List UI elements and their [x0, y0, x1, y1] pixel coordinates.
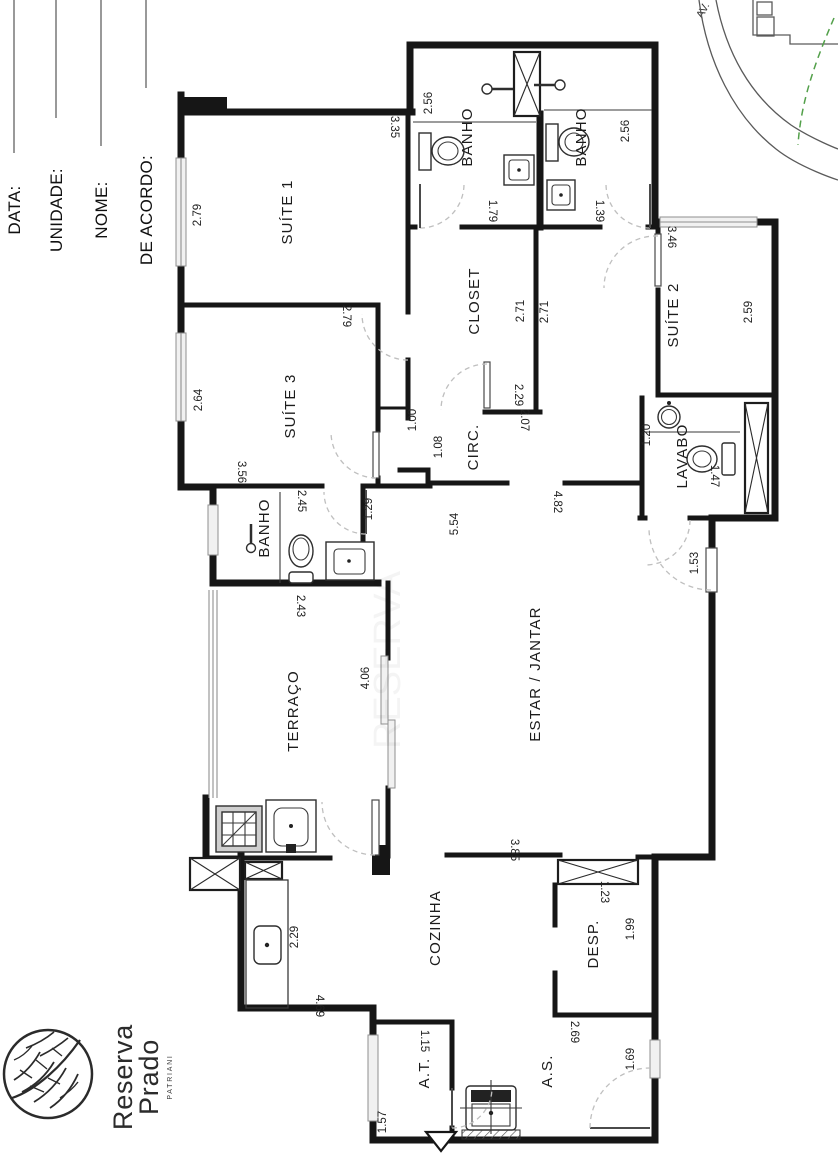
blueprint-svg: DATA: UNIDADE: NOME: DE ACORDO: AV. — [0, 0, 838, 1175]
tank-base-hatch — [462, 1130, 520, 1139]
dim-suite1-width: 2.79 — [192, 204, 204, 226]
as-window — [650, 1040, 660, 1078]
shaft-desp — [558, 860, 638, 884]
suite3-door-leaf — [373, 432, 379, 478]
room-label-suite3: SUÍTE 3 — [282, 373, 299, 438]
dim-terraco-width: 2.43 — [294, 595, 306, 617]
road-edge-inner — [699, 0, 838, 180]
room-label-banho3: BANHO — [256, 498, 273, 557]
logo: Reserva Prado PATRIANI — [4, 1024, 174, 1130]
dim-at-width: 1.15 — [418, 1030, 430, 1052]
banho3-shower-icon — [247, 524, 256, 553]
title-block: DATA: UNIDADE: NOME: DE ACORDO: — [5, 0, 156, 265]
logo-brand: PATRIANI — [167, 1054, 174, 1099]
road-edge-outer — [716, 0, 838, 149]
dim-lavabo-b: 1.47 — [708, 465, 720, 487]
dim-banho1-width: 1.79 — [486, 200, 498, 222]
suite3-door-arc — [331, 432, 376, 478]
banho1-sink-icon — [504, 155, 534, 185]
site-map: AV. — [694, 0, 838, 180]
dim-as-window: 1.69 — [625, 1048, 637, 1070]
estar-entry-door-arc — [649, 528, 711, 590]
dim-closet-length-left: 2.71 — [515, 300, 527, 322]
room-label-circ: CIRC. — [465, 424, 482, 471]
dim-circ-width: 2.07 — [518, 409, 530, 431]
wall-circ-south-corner — [400, 470, 428, 483]
shaft-lavabo — [745, 403, 768, 513]
terraco-sink-icon — [266, 800, 316, 853]
room-label-lavabo: LAVABO — [674, 423, 691, 488]
dim-closet-length-right: 2.71 — [539, 301, 551, 323]
dim-estar-door: 1.53 — [689, 552, 701, 574]
dim-cozinha-width: 4.69 — [313, 995, 325, 1017]
lavabo-sink-icon — [645, 401, 740, 432]
dim-suite3-width: 2.64 — [193, 388, 205, 411]
banho3-door-arc — [324, 492, 366, 534]
room-label-estar: ESTAR / JANTAR — [527, 606, 544, 741]
dim-at-length: 1.57 — [377, 1111, 389, 1133]
room-label-desp: DESP. — [585, 919, 602, 968]
dim-lavabo-a: 1.20 — [641, 424, 653, 446]
dim-banho2-length: 2.56 — [620, 120, 632, 142]
leaf-emblem-icon — [4, 1030, 92, 1118]
suite2-door-leaf — [655, 234, 661, 286]
floor-plan: RESERVA SUÍTE 1 SUÍTE 2 SUÍTE 3 BANHO BA… — [176, 45, 775, 1151]
room-label-closet: CLOSET — [466, 267, 483, 334]
dim-circ-b: 1.08 — [433, 436, 445, 458]
grill-icon — [216, 806, 262, 852]
dim-suite1-length: 3.35 — [388, 116, 400, 138]
banho3-toilet-icon — [289, 535, 313, 583]
as-door-arc — [590, 1068, 650, 1128]
terraco-door-leaf — [372, 800, 379, 855]
room-label-cozinha: COZINHA — [427, 890, 444, 966]
building-unit-b — [757, 17, 774, 36]
suite1-door-arc — [362, 314, 408, 360]
room-label-at: A.T. — [416, 1058, 433, 1089]
laundry-tank-icon — [460, 1080, 522, 1139]
banho3-window — [208, 505, 218, 555]
data-field-label: DATA: — [5, 185, 24, 234]
site-boundary-green-dashed — [798, 18, 834, 145]
shaft-kitchen — [245, 862, 282, 879]
room-label-terraco: TERRAÇO — [285, 670, 302, 752]
room-label-suite2: SUÍTE 2 — [665, 282, 682, 347]
avenue-label: AV. — [694, 1, 712, 21]
dim-desp-width: 1.23 — [598, 881, 610, 903]
banho2-sink-icon — [547, 180, 575, 210]
suite2-door-arc — [604, 236, 658, 288]
building-unit-a — [757, 2, 772, 15]
dim-cozinha-counter: 2.29 — [289, 926, 301, 948]
unidade-field-label: UNIDADE: — [47, 168, 66, 252]
dim-estar-length: 5.54 — [449, 512, 461, 535]
dim-suite3-top: 2.79 — [340, 305, 352, 327]
nome-field-label: NOME: — [92, 181, 111, 238]
dim-banho3-door: 1.29 — [363, 498, 375, 520]
dim-suite3-bottom: 3.56 — [235, 461, 247, 483]
room-label-banho1: BANHO — [459, 107, 476, 166]
wall-perimeter-right — [241, 45, 775, 1140]
building-footprint — [753, 0, 838, 44]
banho1-shower-icon — [482, 84, 513, 94]
lavabo-door-arc — [645, 520, 690, 565]
terraco-railing — [209, 590, 217, 798]
dim-estar-width: 4.82 — [551, 491, 563, 513]
dim-cozinha-top: 3.85 — [508, 839, 520, 861]
shaft-lobby — [190, 858, 240, 890]
floor-plan-sheet: DATA: UNIDADE: NOME: DE ACORDO: AV. — [0, 0, 838, 1175]
dim-terraco-length: 4.06 — [360, 667, 372, 689]
banho1-toilet-icon — [419, 133, 464, 170]
deacordo-field-label: DE ACORDO: — [137, 155, 156, 265]
watermark-text: RESERVA — [367, 570, 409, 749]
dim-banho1-length: 2.56 — [423, 92, 435, 114]
closet-door-leaf — [484, 362, 490, 408]
logo-name-line2: Prado — [134, 1039, 164, 1115]
dimension-labels: 2.79 3.35 2.56 1.79 2.56 1.39 3.46 2.59 … — [192, 92, 755, 1133]
room-label-banho2: BANHO — [573, 107, 590, 166]
banho1-door-arc — [420, 184, 464, 228]
estar-entry-door-panel — [706, 548, 717, 592]
dim-suite2-width: 3.46 — [665, 226, 677, 248]
room-label-suite1: SUÍTE 1 — [279, 179, 296, 244]
closet-door-arc — [441, 364, 487, 410]
dim-desp-length: 1.99 — [625, 918, 637, 940]
terraco-door-arc — [322, 802, 375, 855]
dim-as-width: 2.69 — [568, 1021, 580, 1043]
banho2-door-arc — [606, 184, 650, 228]
at-window — [368, 1035, 378, 1121]
kitchen-counter — [246, 880, 288, 1008]
dim-banho3-width: 2.45 — [295, 490, 307, 512]
dim-banho2-width: 1.39 — [593, 200, 605, 222]
dim-suite2-length: 2.59 — [743, 301, 755, 323]
walls — [181, 45, 775, 1140]
dim-circ-a: 1.00 — [407, 409, 419, 431]
room-label-as: A.S. — [539, 1054, 556, 1087]
dim-closet-width: 2.29 — [512, 384, 524, 406]
